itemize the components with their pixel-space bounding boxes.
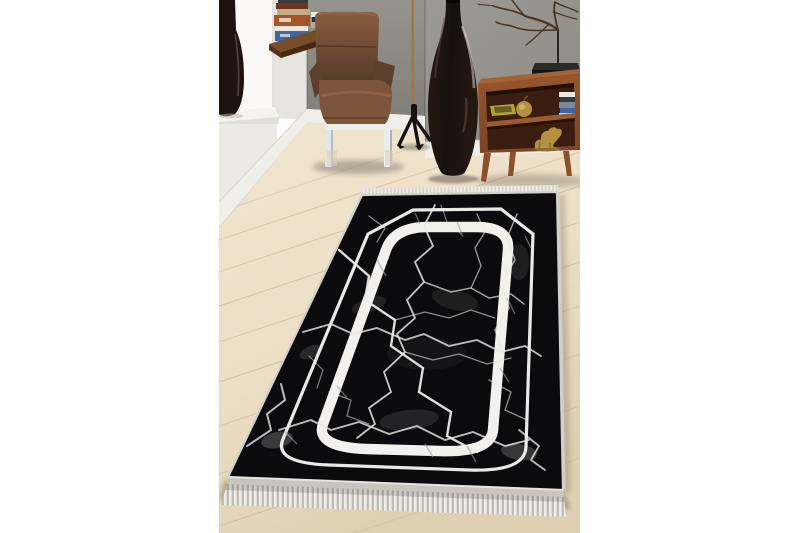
yellow-tray (490, 104, 516, 116)
product-image-canvas (0, 0, 800, 533)
room-scene (219, 0, 580, 533)
product-photo (219, 0, 580, 533)
lamp-pole (412, 0, 415, 122)
